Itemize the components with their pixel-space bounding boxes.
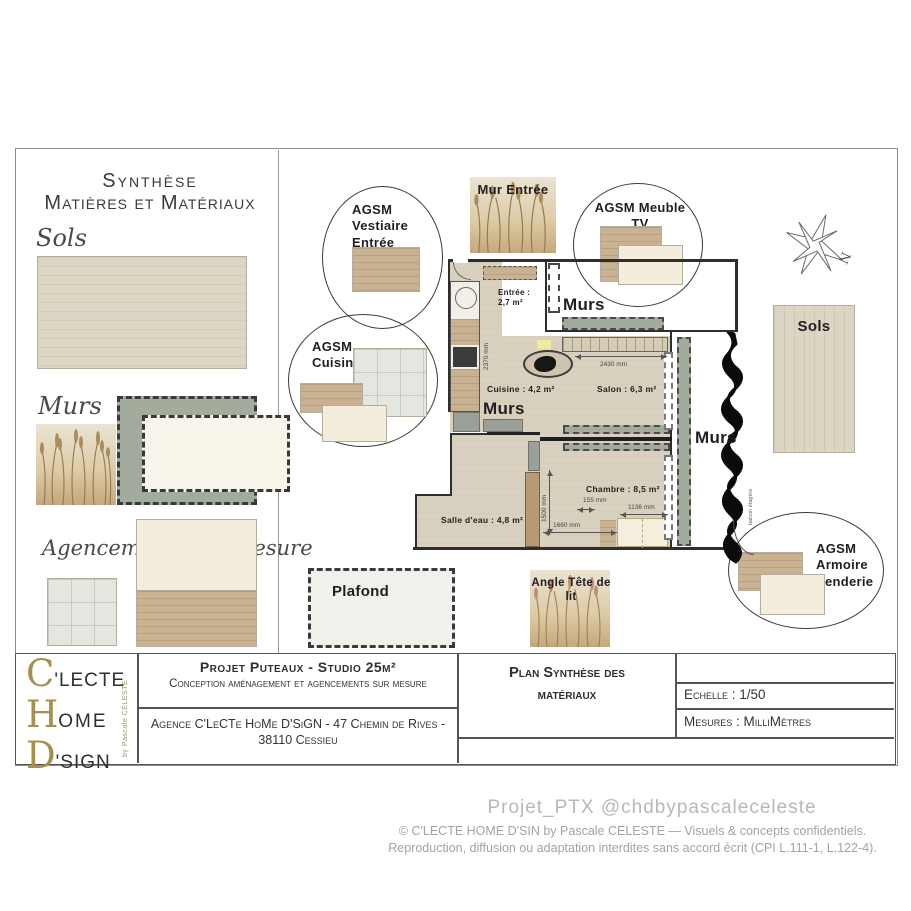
logo-letter-h: H xyxy=(26,693,58,736)
armoire-cream-swatch xyxy=(760,574,825,615)
dim-1500: 1500 mm xyxy=(541,482,548,522)
sols-section-label: Sols xyxy=(36,224,87,252)
wall-neighbor-bottom xyxy=(547,330,737,332)
finish-strip-salon xyxy=(664,352,673,430)
cuisine-cream-swatch xyxy=(322,405,387,442)
agencement-tile-sample xyxy=(47,578,117,646)
dim-1660-line xyxy=(543,532,617,533)
compass xyxy=(782,212,852,282)
murs-section-label: Murs xyxy=(38,392,102,420)
murs-marker-mid2 xyxy=(563,443,670,451)
copyright-line1: © C'LECTE HOME D'SIN by Pascale CELESTE … xyxy=(380,824,885,838)
tb-hline-echelle-top xyxy=(675,682,894,684)
logo-word-ome: OME xyxy=(58,711,107,732)
entree-cabinet xyxy=(483,266,537,280)
dim-2430-line xyxy=(575,356,667,357)
grass-illustration xyxy=(36,424,116,505)
mur-entree-label: Mur Entrée xyxy=(470,182,556,198)
murs-label-top: Murs xyxy=(563,294,605,315)
design-board: Synthèse Matières et Matériaux Sols Murs… xyxy=(0,0,911,911)
logo-byline: by Pascale CÉLESTE xyxy=(122,672,129,757)
project-title: Projet Puteaux - Studio 25m² xyxy=(142,659,454,675)
social-handle: Projet_PTX @chdbypascaleceleste xyxy=(402,797,902,819)
units-value: Mesures : MilliMètres xyxy=(684,714,811,729)
floor-salle-eau-haut xyxy=(452,435,522,495)
murs-marker-entree xyxy=(548,263,560,313)
dim-155-line xyxy=(577,509,595,510)
highlight-yellow xyxy=(537,340,551,349)
meuble-tv-cream-swatch xyxy=(618,245,683,285)
tb-hline-bottom-cell xyxy=(457,737,894,739)
finish-strip-chambre xyxy=(664,455,673,540)
wall-top xyxy=(448,259,738,262)
wardrobe-strip xyxy=(525,472,540,547)
murs-marker-right xyxy=(677,337,691,546)
tb-vline-3 xyxy=(675,654,677,738)
agency-address: Agence C'LeCTe HoMe D'SiGN - 47 Chemin d… xyxy=(146,716,450,749)
kitchen-sink-icon xyxy=(455,287,477,309)
dim-2430: 2430 mm xyxy=(600,361,627,368)
table-plant-icon xyxy=(534,356,556,372)
plafond-label: Plafond xyxy=(332,583,389,602)
dim-155: 155 mm xyxy=(583,497,606,504)
sols-right-label: Sols xyxy=(773,318,855,337)
murs-label-left: Murs xyxy=(483,398,525,419)
angle-tete-label: Angle Tête de lit xyxy=(526,576,616,605)
room-label-salle-eau: Salle d'eau : 4,8 m² xyxy=(441,515,523,526)
wall-bottom xyxy=(413,547,738,550)
murs-label-right: Murs xyxy=(695,427,737,448)
panel-title-line2: Matières et Matériaux xyxy=(20,192,280,215)
logo-word-lecte: 'LECTE xyxy=(54,670,125,691)
murs-marker-top xyxy=(562,317,664,330)
logo-word-sign: 'SIGN xyxy=(56,752,111,773)
murs-marker-mid1 xyxy=(563,425,670,434)
gray-unit-1 xyxy=(453,412,480,432)
room-label-entree: Entrée : 2,7 m² xyxy=(498,288,530,308)
partition-chambre xyxy=(540,437,672,441)
dim-1660: 1660 mm xyxy=(553,522,580,529)
logo-letter-d: D xyxy=(26,734,56,777)
tb-hline-echelle-bottom xyxy=(675,708,894,710)
copyright-line2: Reproduction, diffusion ou adaptation in… xyxy=(380,841,885,855)
wall-salle-eau-step xyxy=(415,494,452,496)
dim-2370: 2370 mm xyxy=(483,325,490,370)
sliding-door-line xyxy=(487,432,540,435)
gray-unit-3 xyxy=(528,441,540,471)
plan-title: Plan Synthèse des matériaux xyxy=(462,663,672,707)
hedge-note: balcon étagère xyxy=(748,440,754,525)
wall-salle-eau-left-bas xyxy=(415,495,417,548)
agencement-wood-sample xyxy=(136,590,257,647)
chd-logo: C'LECTE HOME D'SIGN xyxy=(26,657,131,761)
room-label-salon: Salon : 6,3 m² xyxy=(597,384,656,395)
murs-cream-sample xyxy=(142,415,290,492)
tb-vline-2 xyxy=(457,654,459,763)
agencement-cream-sample xyxy=(136,519,257,591)
tb-vline-1 xyxy=(137,654,139,763)
dim-1136: 1136 mm xyxy=(628,504,655,511)
scale-value: Echelle : 1/50 xyxy=(684,687,766,702)
callout-vestiaire-label: AGSM Vestiaire Entrée xyxy=(352,202,408,251)
bed xyxy=(617,518,668,547)
wall-entree-right xyxy=(545,259,547,332)
kitchen-stove-icon xyxy=(453,347,477,367)
project-subtitle: Conception aménagement et agencements su… xyxy=(146,677,450,691)
dim-1500-line xyxy=(549,470,550,535)
panel-title-line1: Synthèse xyxy=(30,170,270,193)
kitchen-counter-wood-2 xyxy=(451,369,479,411)
sols-wood-sample xyxy=(37,256,247,369)
gray-unit-2 xyxy=(483,419,523,432)
kitchen-counter-wood xyxy=(451,319,479,345)
dining-table xyxy=(523,350,573,378)
plafond-sample xyxy=(308,568,455,648)
room-label-cuisine: Cuisine : 4,2 m² xyxy=(487,384,555,395)
room-label-chambre: Chambre : 8,5 m² xyxy=(586,484,660,495)
wall-salle-eau-left-haut xyxy=(450,435,452,495)
vestiaire-wood-swatch xyxy=(352,247,420,292)
dim-1136-line xyxy=(620,514,668,515)
left-panel-divider xyxy=(278,150,279,653)
logo-letter-c: C xyxy=(26,652,54,695)
title-block: C'LECTE HOME D'SIGN by Pascale CÉLESTE P… xyxy=(15,653,896,765)
sofa xyxy=(562,337,668,352)
tb-hline-agency xyxy=(137,707,458,709)
murs-grass-photo xyxy=(36,424,116,505)
wall-right-outer xyxy=(735,259,738,332)
compass-star-icon xyxy=(782,212,852,282)
bed-split-line xyxy=(642,519,643,548)
